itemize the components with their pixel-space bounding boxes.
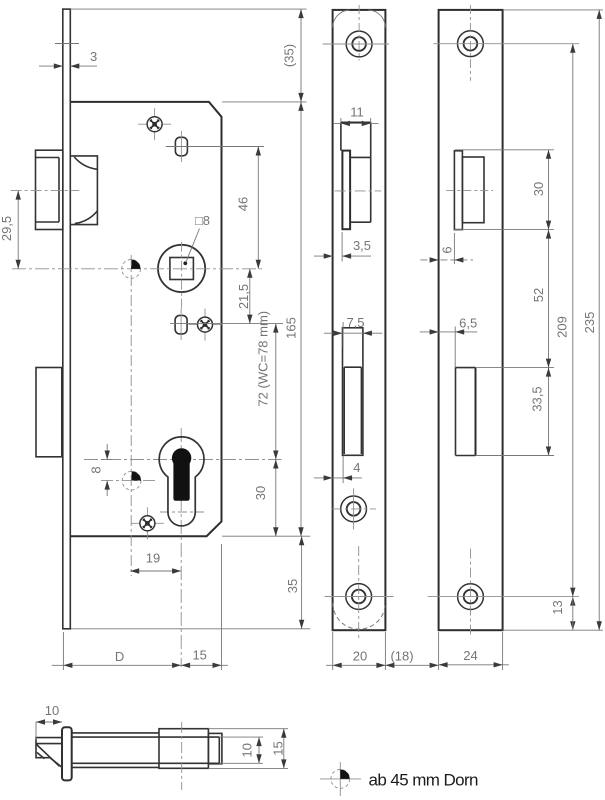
svg-text:19: 19 [146,551,160,566]
svg-text:10: 10 [240,743,255,757]
svg-text:35: 35 [285,579,300,593]
svg-text:13: 13 [550,600,565,614]
svg-text:7,5: 7,5 [346,315,364,330]
svg-text:30: 30 [253,486,268,500]
svg-text:3: 3 [90,49,97,64]
svg-text:21,5: 21,5 [236,284,251,309]
svg-text:52: 52 [531,288,546,302]
svg-text:165: 165 [284,317,299,339]
svg-text:209: 209 [555,316,570,338]
svg-text:(18): (18) [390,649,413,664]
svg-text:72 (WC=78 mm): 72 (WC=78 mm) [256,311,271,407]
svg-text:15: 15 [192,647,206,662]
svg-text:ab 45 mm Dorn: ab 45 mm Dorn [369,770,479,789]
svg-text:8: 8 [89,466,104,473]
svg-text:235: 235 [582,312,597,334]
svg-text:15: 15 [271,741,286,755]
svg-text:20: 20 [353,649,367,664]
svg-text:4: 4 [353,460,360,475]
svg-text:33,5: 33,5 [530,386,545,411]
svg-text:6,5: 6,5 [459,315,477,330]
svg-text:(35): (35) [282,44,297,67]
svg-text:11: 11 [350,105,364,120]
svg-text:10: 10 [45,703,59,718]
svg-text:30: 30 [531,182,546,196]
svg-text:□8: □8 [195,213,210,228]
svg-text:24: 24 [463,648,477,663]
svg-text:D: D [115,649,124,664]
svg-text:46: 46 [236,197,251,211]
svg-text:6: 6 [440,246,455,253]
svg-text:3,5: 3,5 [353,238,371,253]
svg-text:29,5: 29,5 [0,216,14,241]
